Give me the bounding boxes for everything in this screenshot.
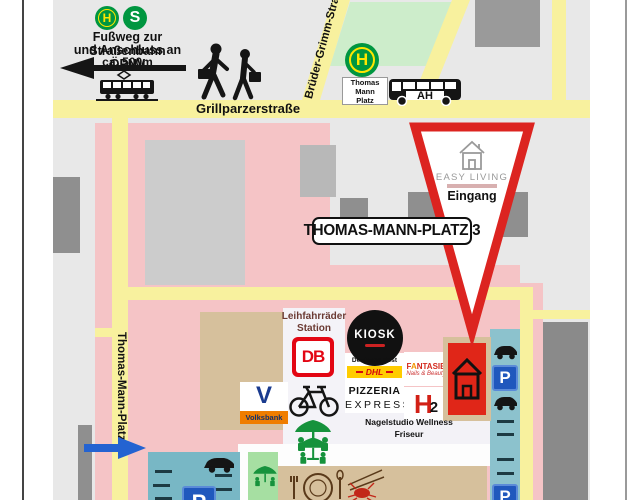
entrance-label: Eingang [430, 189, 514, 203]
easy-living-house-icon [455, 138, 489, 172]
address-plate: THOMAS-MANN-PLATZ 3 [312, 217, 472, 245]
site-map: H S Fußweg zur Straßenbahn und Anschluss… [0, 0, 639, 500]
easy-living-tagline-mark [447, 184, 497, 188]
destination-pointer [0, 0, 639, 500]
easy-living-brand: EASY LIVING [430, 172, 514, 183]
